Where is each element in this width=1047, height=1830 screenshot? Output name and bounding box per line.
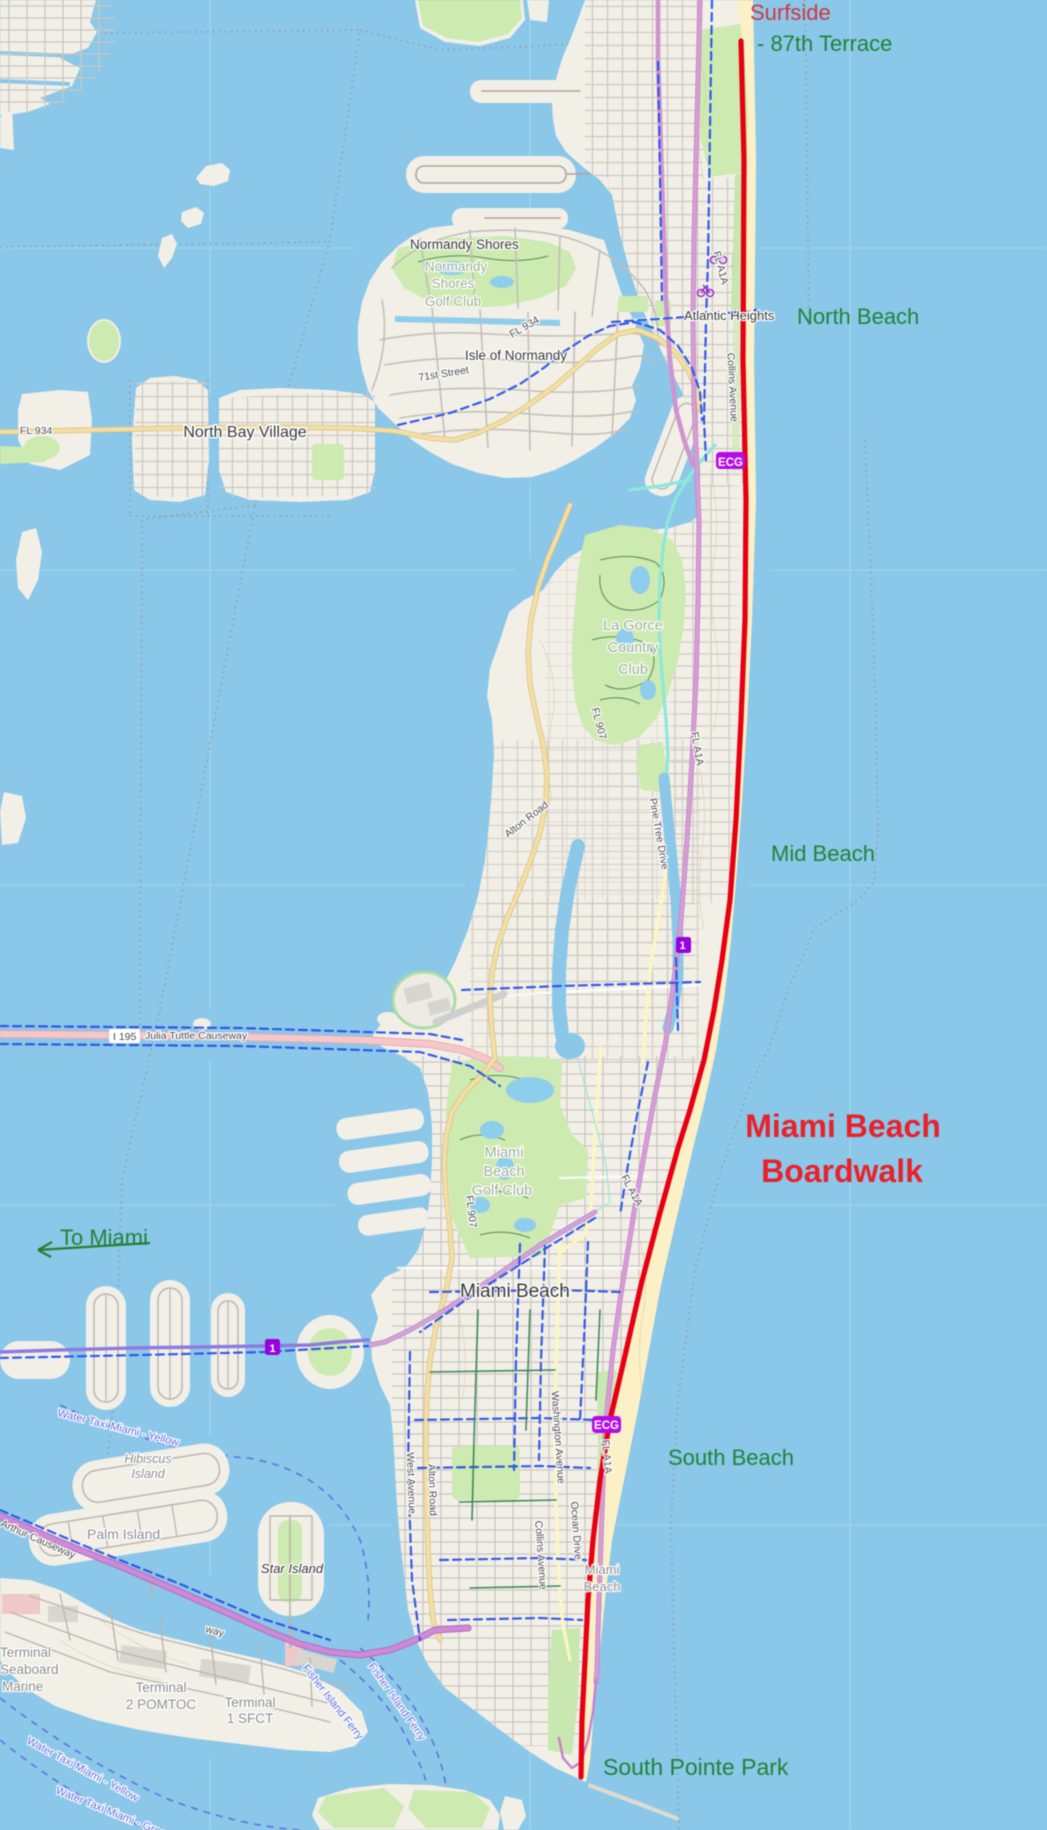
svg-text:Terminal: Terminal [135, 1680, 186, 1695]
svg-text:1 SFCT: 1 SFCT [227, 1711, 274, 1726]
svg-text:Alton Road: Alton Road [425, 1464, 439, 1516]
svg-text:Atlantic Heights: Atlantic Heights [684, 308, 775, 323]
svg-text:ECG: ECG [594, 1420, 619, 1432]
svg-text:Terminal: Terminal [224, 1695, 275, 1710]
svg-text:Isle of Normandy: Isle of Normandy [465, 348, 567, 363]
svg-text:Normandy Shores: Normandy Shores [410, 237, 519, 252]
svg-text:2 POMTOC: 2 POMTOC [126, 1697, 197, 1712]
svg-text:FL 934: FL 934 [20, 425, 52, 437]
svg-text:1: 1 [269, 1343, 275, 1355]
svg-text:Palm Island: Palm Island [87, 1526, 160, 1542]
svg-text:ECG: ECG [718, 457, 743, 469]
svg-text:Club: Club [618, 662, 648, 678]
svg-text:Mid Beach: Mid Beach [771, 841, 875, 866]
svg-text:Beach: Beach [584, 1579, 621, 1594]
svg-text:Surfside: Surfside [750, 0, 831, 25]
svg-text:Island: Island [131, 1467, 165, 1481]
svg-text:Miami: Miami [585, 1562, 620, 1577]
svg-text:Country: Country [608, 640, 660, 656]
svg-text:Star Island: Star Island [261, 1561, 324, 1576]
svg-text:1: 1 [679, 940, 685, 952]
svg-text:South Beach: South Beach [668, 1445, 794, 1470]
svg-text:Marine: Marine [2, 1679, 43, 1694]
svg-text:Normandy: Normandy [425, 259, 488, 274]
svg-text:Miami Beach: Miami Beach [745, 1108, 941, 1144]
svg-text:South Pointe Park: South Pointe Park [603, 1754, 789, 1780]
svg-text:North Bay Village: North Bay Village [183, 424, 306, 441]
svg-text:Terminal: Terminal [0, 1645, 51, 1660]
svg-text:Julia Tuttle Causeway: Julia Tuttle Causeway [145, 1030, 248, 1042]
svg-text:Seaboard: Seaboard [0, 1662, 59, 1677]
svg-text:Miami: Miami [485, 1145, 524, 1161]
svg-text:Golf Club: Golf Club [425, 294, 481, 309]
svg-text:Boardwalk: Boardwalk [761, 1153, 923, 1189]
svg-text:West Avenue: West Avenue [404, 1452, 418, 1514]
svg-text:La Gorce: La Gorce [603, 618, 663, 634]
svg-text:Miami Beach: Miami Beach [460, 1281, 570, 1302]
svg-text:- 87th Terrace: - 87th Terrace [757, 31, 892, 56]
svg-text:Beach: Beach [483, 1164, 524, 1180]
svg-text:Shores: Shores [432, 276, 475, 291]
svg-text:Hibiscus: Hibiscus [124, 1452, 171, 1466]
svg-text:Golf Club: Golf Club [472, 1183, 532, 1199]
svg-text:I 195: I 195 [113, 1031, 137, 1043]
svg-text:North Beach: North Beach [797, 304, 919, 329]
